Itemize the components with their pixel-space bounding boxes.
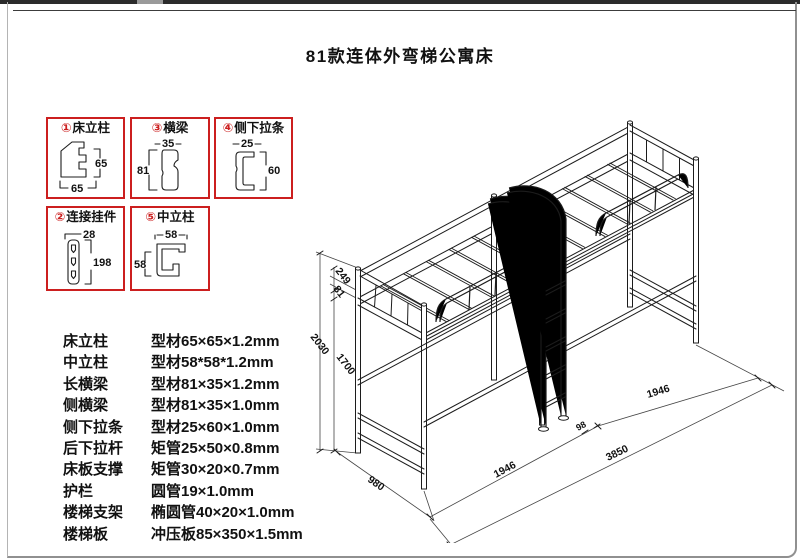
spec-row: 楼梯支架椭圆管40×20×1.0mm [63, 502, 303, 523]
dim-label: 65 [71, 183, 83, 194]
detail-box-name: 横梁 [163, 121, 188, 136]
spec-list: 床立柱型材65×65×1.2mm 中立柱型材58*58*1.2mm 长横梁型材8… [63, 331, 303, 545]
spec-row: 后下拉杆矩管25×50×0.8mm [63, 438, 303, 459]
drawing-title: 81款连体外弯梯公寓床 [0, 42, 800, 67]
dim-total-length: 3850 [604, 443, 630, 464]
spec-row: 床立柱型材65×65×1.2mm [63, 331, 303, 352]
dim-guardrail-height: 249 [333, 265, 353, 286]
circled-number: ⑤ [145, 210, 156, 225]
window-top-edge-notch [137, 0, 163, 4]
beam-profile-drawing: 35 81 [133, 136, 208, 194]
spec-part-name: 长横梁 [63, 374, 151, 395]
spec-part-size: 圆管19×1.0mm [151, 481, 254, 502]
detail-box-beam: ③ 横梁 35 81 [130, 117, 210, 199]
dim-label: 81 [137, 165, 149, 177]
spec-part-name: 后下拉杆 [63, 438, 151, 459]
detail-box-name: 床立柱 [73, 121, 111, 136]
window-top-edge [0, 0, 800, 4]
spec-part-name: 床板支撑 [63, 459, 151, 480]
circled-number: ③ [152, 121, 163, 136]
dim-label: 28 [83, 229, 95, 241]
detail-box-name: 连接挂件 [66, 210, 116, 225]
spec-part-name: 楼梯支架 [63, 502, 151, 523]
spec-row: 床板支撑矩管30×20×0.7mm [63, 459, 303, 480]
detail-box-name: 侧下拉条 [234, 121, 284, 136]
spec-part-size: 椭圆管40×20×1.0mm [151, 502, 294, 523]
dim-width: 980 [365, 474, 386, 494]
dim-label: 198 [93, 257, 111, 269]
spec-part-name: 护栏 [63, 481, 151, 502]
spec-part-size: 型材25×60×1.0mm [151, 417, 279, 438]
connector-profile-drawing: 28 198 [48, 225, 123, 287]
dim-label: 58 [134, 259, 146, 271]
detail-box-name: 中立柱 [157, 210, 195, 225]
spec-part-size: 矩管25×50×0.8mm [151, 438, 279, 459]
spec-part-size: 型材81×35×1.2mm [151, 374, 279, 395]
dim-ladder-offset: 98 [574, 419, 588, 433]
spec-part-size: 型材58*58*1.2mm [151, 352, 274, 373]
spec-row: 长横梁型材81×35×1.2mm [63, 374, 303, 395]
circled-number: ① [61, 121, 72, 136]
spec-part-size: 型材65×65×1.2mm [151, 331, 279, 352]
detail-box-side-tie: ④ 侧下拉条 25 60 [214, 117, 293, 199]
spec-row: 侧下拉条型材25×60×1.0mm [63, 417, 303, 438]
dim-label: 25 [241, 138, 253, 150]
spec-part-size: 冲压板85×350×1.5mm [151, 524, 303, 545]
spec-part-name: 楼梯板 [63, 524, 151, 545]
detail-box-label: ④ 侧下拉条 [216, 121, 291, 136]
detail-box-label: ② 连接挂件 [48, 210, 123, 225]
detail-box-label: ⑤ 中立柱 [132, 210, 208, 225]
circled-number: ② [55, 210, 66, 225]
spec-row: 护栏圆管19×1.0mm [63, 481, 303, 502]
detail-box-label: ③ 横梁 [132, 121, 208, 136]
dim-label: 58 [165, 229, 177, 241]
dim-platform-height: 1700 [334, 351, 358, 377]
detail-box-label: ① 床立柱 [48, 121, 123, 136]
dim-label: 60 [268, 165, 280, 177]
dim-label: 65 [95, 158, 107, 170]
dim-bay-right: 1946 [645, 383, 671, 401]
spec-part-size: 矩管30×20×0.7mm [151, 459, 279, 480]
dim-bay-left: 1946 [492, 459, 518, 481]
spec-part-name: 床立柱 [63, 331, 151, 352]
spec-part-name: 中立柱 [63, 352, 151, 373]
bed-isometric-drawing: 249 81 2030 1700 980 1946 1946 3850 98 [300, 95, 798, 543]
spec-row: 侧横梁型材81×35×1.0mm [63, 395, 303, 416]
dim-total-height: 2030 [308, 331, 332, 357]
dim-label: 35 [162, 138, 174, 150]
side-tie-profile-drawing: 25 60 [216, 136, 291, 194]
spec-part-name: 侧下拉条 [63, 417, 151, 438]
detail-box-bed-post: ① 床立柱 65 65 [46, 117, 125, 199]
detail-box-middle-post: ⑤ 中立柱 58 58 [130, 206, 210, 291]
bed-post-profile-drawing: 65 65 [48, 136, 123, 194]
detail-box-connector: ② 连接挂件 28 198 [46, 206, 125, 291]
circled-number: ④ [223, 121, 234, 136]
spec-part-name: 侧横梁 [63, 395, 151, 416]
spec-row: 楼梯板冲压板85×350×1.5mm [63, 524, 303, 545]
page-top-rule [13, 10, 796, 11]
middle-post-profile-drawing: 58 58 [133, 225, 208, 287]
spec-row: 中立柱型材58*58*1.2mm [63, 352, 303, 373]
spec-part-size: 型材81×35×1.0mm [151, 395, 279, 416]
